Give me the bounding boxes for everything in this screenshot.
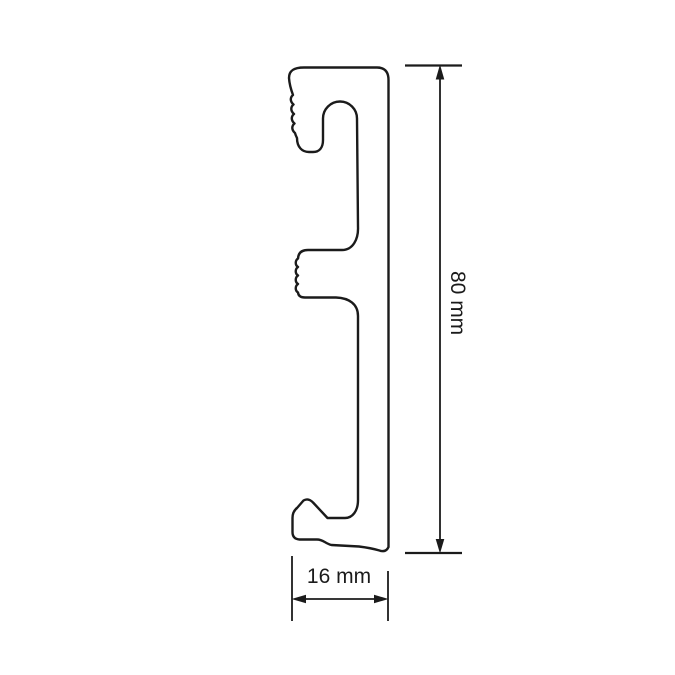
arrow-right-icon <box>374 595 389 604</box>
arrow-up-icon <box>436 65 445 80</box>
width-dimension-label: 16 mm <box>301 565 377 588</box>
profile-outline <box>289 68 389 552</box>
diagram-page: { "diagram": { "background_color": "#fff… <box>0 0 675 675</box>
arrow-left-icon <box>292 595 307 604</box>
arrow-down-icon <box>436 539 445 554</box>
height-dimension-label: 80 mm <box>446 271 469 335</box>
drawing-area: 80 mm 16 mm <box>0 0 675 675</box>
